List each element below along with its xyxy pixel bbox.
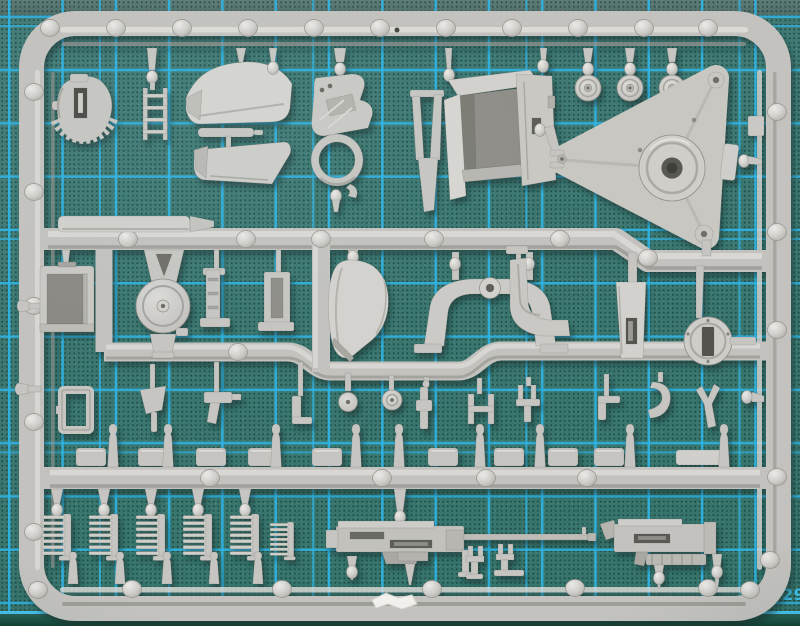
casemate-box [410,48,560,212]
paint-chip [372,593,417,609]
idler-wheel [136,250,190,358]
ladder [143,48,168,140]
gear-cam-plate [52,74,114,142]
plank-strip [58,216,214,232]
tripod-clamps [466,544,524,579]
curved-panel [328,250,388,362]
ring-mount [311,48,372,212]
sprue-svg [0,0,800,626]
mount-brackets [200,250,294,331]
machine-gun-large [326,489,596,585]
photo-sprue-on-cutting-mat: 29 [0,0,800,626]
machine-gun-small [600,519,723,588]
open-frame [56,390,90,430]
u-bracket [414,252,568,353]
track-combs [42,489,295,584]
sprue-root [15,20,787,609]
